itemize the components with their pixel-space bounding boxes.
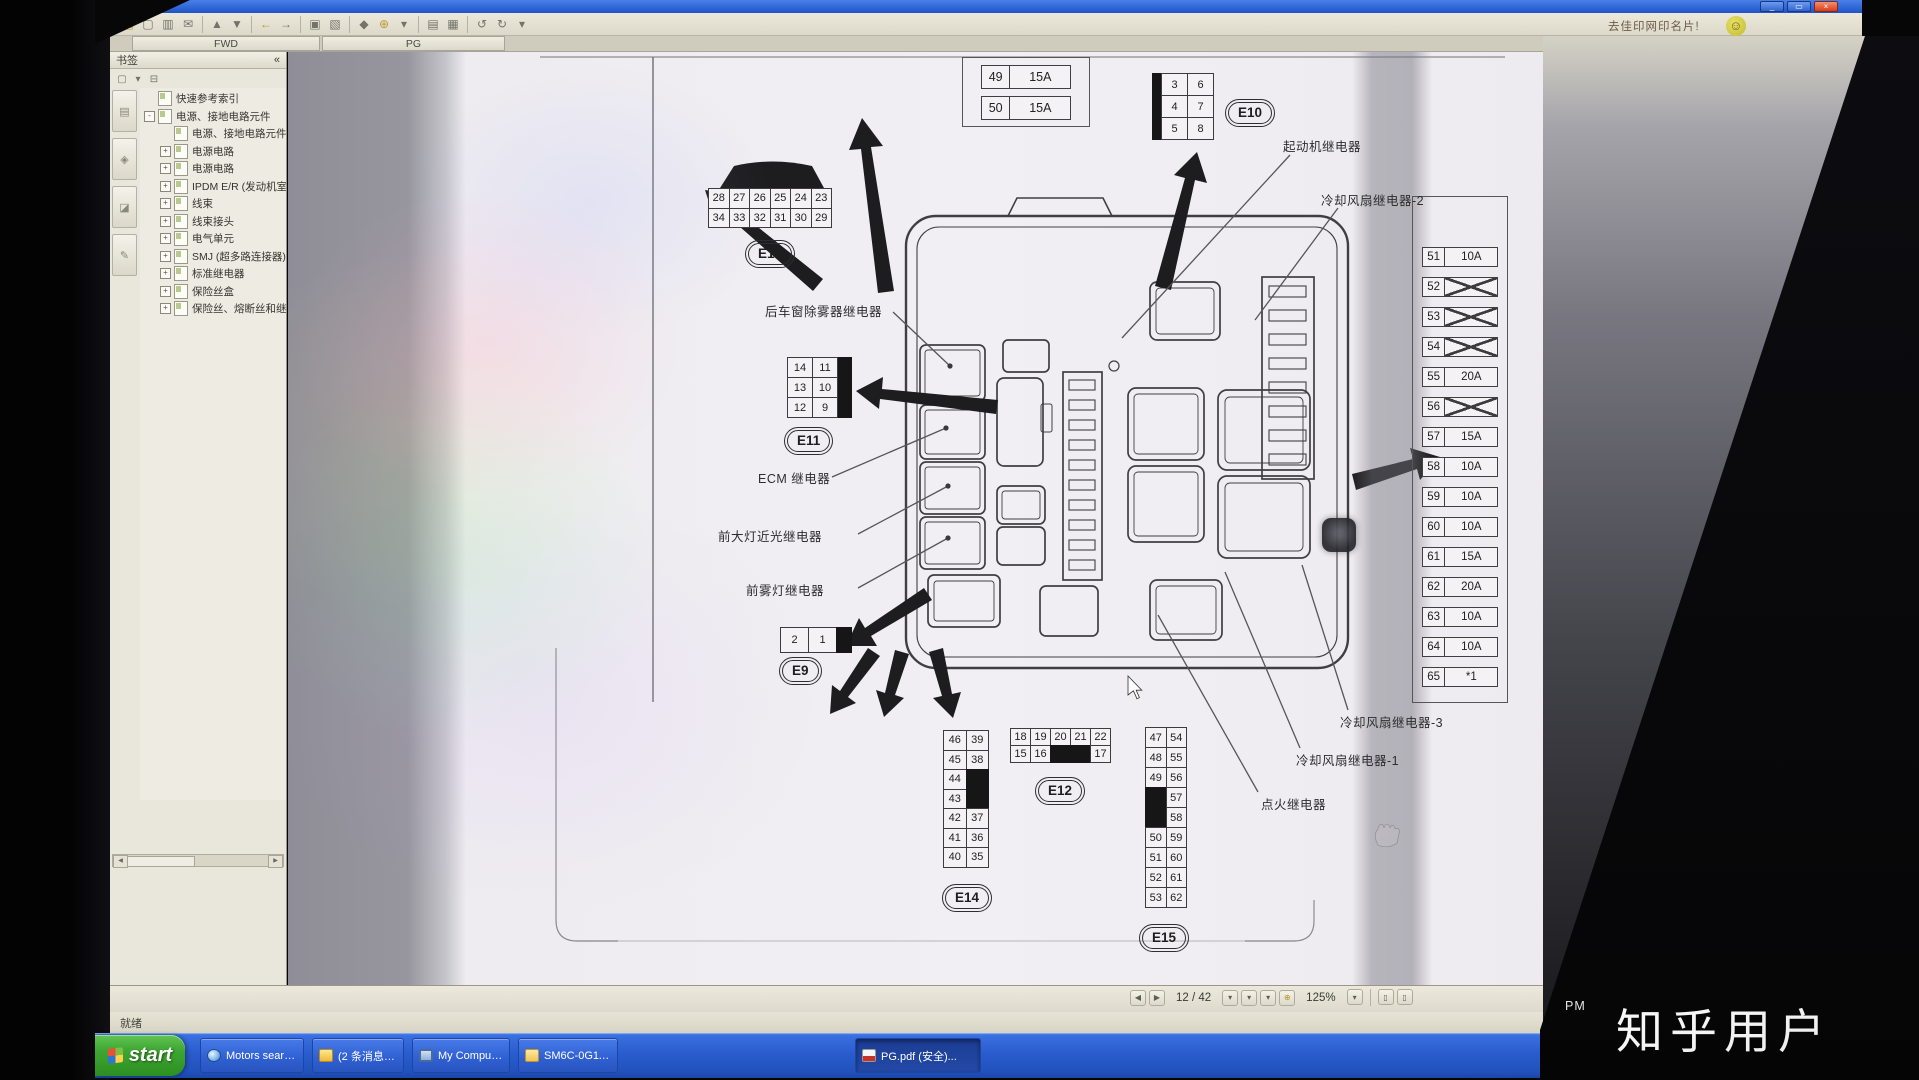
- fuse-number: 51: [1422, 247, 1446, 267]
- start-label: start: [129, 1044, 172, 1067]
- pages-panel-tab[interactable]: ▤: [112, 90, 137, 132]
- terminal-row: 4237: [943, 808, 989, 829]
- terminal-cell: 43: [943, 789, 967, 810]
- continuous-layout-icon[interactable]: ▦: [443, 15, 463, 34]
- terminal-cell: 49: [1145, 767, 1167, 788]
- terminal-row: 1411: [787, 357, 838, 378]
- bookmark-label[interactable]: 保险丝盒: [192, 284, 234, 299]
- blocked-cell: [836, 627, 852, 653]
- bookmark-label[interactable]: 电源、接地电路元件: [176, 109, 271, 124]
- terminal-row: 4035: [943, 847, 989, 868]
- fuse-number: 62: [1422, 577, 1446, 597]
- scroll-left-icon[interactable]: ◀: [113, 855, 128, 868]
- terminal-row: 1819202122: [1010, 728, 1111, 746]
- terminal-cell: 59: [1166, 827, 1188, 848]
- taskbar-task-pc[interactable]: My Computer: [412, 1038, 510, 1073]
- terminal-cell: 41: [943, 828, 967, 849]
- rotate-right-icon[interactable]: ↻: [492, 15, 512, 34]
- previous-page-icon[interactable]: ◀: [1130, 990, 1146, 1006]
- bookmark-label[interactable]: 电气单元: [192, 231, 234, 246]
- blocked-cell: [966, 769, 990, 790]
- bookmark-page-icon: [158, 91, 172, 106]
- bookmark-item[interactable]: +保险丝盒: [140, 283, 286, 301]
- fuse-rating: 20A: [1444, 367, 1498, 387]
- terminal-cell: 56: [1166, 767, 1188, 788]
- bookmark-page-icon: [174, 301, 188, 316]
- bookmarks-hscrollbar[interactable]: ◀ ▶: [112, 854, 284, 867]
- terminal-row: 43: [943, 789, 989, 810]
- terminal-cell: 34: [708, 208, 730, 229]
- bookmark-page-icon: [174, 196, 188, 211]
- collapse-box-icon[interactable]: -: [144, 111, 155, 122]
- fuse-number: 49: [981, 65, 1011, 89]
- terminal-cell: 46: [943, 730, 967, 751]
- fuse-row: 5520A: [1422, 367, 1499, 387]
- window-controls: _ ▭ ×: [1760, 1, 1838, 12]
- taskbar-task-globe[interactable]: Motors searc...: [200, 1038, 304, 1073]
- fuse-number: 58: [1422, 457, 1446, 477]
- rotate-left-icon[interactable]: ↺: [472, 15, 492, 34]
- fuse-number: 59: [1422, 487, 1446, 507]
- terminal-cell: 48: [1145, 747, 1167, 768]
- taskbar: start Motors searc...(2 条消息)日...My Compu…: [95, 1033, 1545, 1078]
- label-headlamp-low-relay: 前大灯近光继电器: [718, 526, 822, 545]
- terminal-cell: 55: [1166, 747, 1188, 768]
- zoom-tool-icon[interactable]: ⊕: [1279, 990, 1295, 1006]
- zoom-in-tool-icon[interactable]: ⊕: [374, 15, 394, 34]
- terminal-cell: 39: [966, 730, 990, 751]
- badge-e9: E9: [779, 657, 822, 685]
- expand-box-icon[interactable]: +: [160, 233, 171, 244]
- leader-lines: [832, 155, 1348, 792]
- bookmark-page-icon: [174, 126, 188, 141]
- bookmark-item[interactable]: +IPDM E/R (发动机室智能配电模块): [140, 178, 286, 196]
- close-button[interactable]: ×: [1814, 1, 1838, 12]
- fuse-row: 52: [1422, 277, 1499, 297]
- badge-e12: E12: [1035, 777, 1085, 805]
- expand-box-icon[interactable]: +: [160, 216, 171, 227]
- fuse-number: 60: [1422, 517, 1446, 537]
- fuse-rating: 10A: [1444, 637, 1498, 657]
- globe-icon: [207, 1049, 221, 1062]
- hand-tool-icon[interactable]: ◆: [354, 15, 374, 34]
- terminal-row: 36: [1161, 73, 1214, 96]
- fuse-table-top: 4915A5015A: [962, 57, 1090, 127]
- status-message-bar: 就绪: [110, 1012, 1545, 1033]
- connector-table-e12: 1819202122151617: [1010, 728, 1111, 763]
- expand-box-icon[interactable]: +: [160, 181, 171, 192]
- terminal-cell: 31: [770, 208, 792, 229]
- task-label: PG.pdf (安全)...: [881, 1048, 957, 1064]
- terminal-row: 47: [1161, 95, 1214, 118]
- bookmark-item[interactable]: 快速参考索引: [140, 90, 286, 108]
- pdf-toolbar: ▤▢▥✉▲▼←→▣▧◆⊕▾▤▦↺↻▾ 去佳印网印名片! ☺: [110, 13, 1862, 36]
- terminal-row: 5362: [1145, 887, 1187, 908]
- terminal-row: 4639: [943, 730, 989, 751]
- badge-e14: E14: [942, 884, 992, 912]
- terminal-cell: 25: [770, 188, 792, 209]
- terminal-cell: 8: [1187, 117, 1214, 140]
- terminal-row: 282726252423: [708, 188, 832, 209]
- terminal-cell: 20: [1050, 728, 1071, 746]
- bookmark-item[interactable]: +SMJ (超多路连接器): [140, 248, 286, 266]
- terminal-cell: 9: [812, 397, 838, 418]
- fuse-row: 6310A: [1422, 607, 1499, 627]
- terminal-cell: 3: [1161, 73, 1188, 96]
- fuse-row: 5715A: [1422, 427, 1499, 447]
- bookmark-page-icon: [174, 266, 188, 281]
- connector-table-e13: 282726252423343332313029: [708, 188, 832, 228]
- fuse-rating: 10A: [1444, 247, 1498, 267]
- fusebox-outline: [906, 198, 1348, 668]
- label-starter-relay: 起动机继电器: [1283, 136, 1361, 155]
- terminal-cell: 33: [729, 208, 751, 229]
- monitor-bezel-left: [0, 0, 110, 1080]
- terminal-cell: 5: [1161, 117, 1188, 140]
- badge-e13: E13: [745, 240, 795, 268]
- terminal-cell: 61: [1166, 867, 1188, 888]
- fuse-number: 50: [981, 96, 1011, 120]
- blocked-cell: [1070, 745, 1091, 763]
- expand-box-icon[interactable]: +: [160, 251, 171, 262]
- label-ignition-relay: 点火继电器: [1261, 794, 1326, 813]
- terminal-row: 4136: [943, 828, 989, 849]
- separator: [1370, 989, 1371, 1006]
- fuse-number: 63: [1422, 607, 1446, 627]
- fuse-rating: 10A: [1444, 517, 1498, 537]
- zoom-menu-icon[interactable]: ▾: [394, 15, 414, 34]
- blocked-cell: [1050, 745, 1071, 763]
- task-label: My Computer: [438, 1050, 503, 1062]
- terminal-cell: 16: [1030, 745, 1051, 763]
- fuse-rating: 15A: [1009, 96, 1071, 120]
- terminal-cell: 47: [1145, 727, 1167, 748]
- layout-buttons: ▾▯▯: [1347, 989, 1413, 1006]
- terminal-cell: 26: [749, 188, 771, 209]
- back-icon[interactable]: ←: [256, 15, 276, 34]
- label-cooling-fan-relay-2: 冷却风扇继电器-2: [1321, 190, 1424, 209]
- next-view-icon[interactable]: ▼: [227, 15, 247, 34]
- terminal-cell: 12: [787, 397, 813, 418]
- mouse-cursor: [1128, 676, 1142, 699]
- bookmark-page-icon: [174, 144, 188, 159]
- fuse-number: 53: [1422, 307, 1446, 327]
- expand-box-icon[interactable]: +: [160, 286, 171, 297]
- bookmarks-panel-tab[interactable]: ◈: [112, 138, 137, 180]
- terminal-cell: 53: [1145, 887, 1167, 908]
- terminal-row: 5059: [1145, 827, 1187, 848]
- fuse-rating: 15A: [1444, 547, 1498, 567]
- display-menu-icon[interactable]: ▾: [1260, 990, 1276, 1006]
- bookmark-item[interactable]: +线束接头: [140, 213, 286, 231]
- fuse-number: 56: [1422, 397, 1446, 417]
- fuse-number: 61: [1422, 547, 1446, 567]
- fuse-number: 57: [1422, 427, 1446, 447]
- terminal-cell: 29: [811, 208, 833, 229]
- fuse-rating: 20A: [1444, 577, 1498, 597]
- fuse-number: 52: [1422, 277, 1446, 297]
- fuse-empty-cell: [1444, 397, 1498, 417]
- e13-connector-wedge: [720, 162, 824, 189]
- task-label: Motors searc...: [226, 1050, 297, 1062]
- taskbar-task-folder[interactable]: SM6C-0G11P0: [518, 1038, 618, 1073]
- collapse-all-icon[interactable]: ⊟: [146, 72, 162, 87]
- bookmark-label[interactable]: 线束: [192, 196, 213, 211]
- expand-box-icon[interactable]: +: [160, 163, 171, 174]
- connector-table-e11: 14111310129: [787, 357, 852, 418]
- snapshot-tool-icon[interactable]: ▧: [325, 15, 345, 34]
- connector-table-e9: 21: [780, 627, 852, 653]
- fuse-row: 6115A: [1422, 547, 1499, 567]
- bookmarks-header: 书签 «: [110, 52, 286, 69]
- terminal-row: 58: [1145, 807, 1187, 828]
- relay-modules: [920, 282, 1310, 640]
- terminal-cell: 22: [1090, 728, 1111, 746]
- terminal-row: 4956: [1145, 767, 1187, 788]
- terminal-cell: 50: [1145, 827, 1167, 848]
- terminal-row: 4855: [1145, 747, 1187, 768]
- terminal-cell: 21: [1070, 728, 1091, 746]
- bookmark-label[interactable]: SMJ (超多路连接器): [192, 249, 286, 264]
- terminal-cell: 52: [1145, 867, 1167, 888]
- terminal-row: 343332313029: [708, 208, 832, 229]
- previous-view-icon[interactable]: ▲: [207, 15, 227, 34]
- label-cooling-fan-relay-1: 冷却风扇继电器-1: [1296, 750, 1399, 769]
- statusbar: ◀▶ 12 / 42 ▾▾▾⊕ 125% ▾▯▯: [110, 985, 1545, 1012]
- restore-button[interactable]: ▭: [1787, 1, 1811, 12]
- bookmark-label[interactable]: 保险丝、熔断丝和继电器: [192, 301, 286, 316]
- photo-stage: _ ▭ × ▤▢▥✉▲▼←→▣▧◆⊕▾▤▦↺↻▾ 去佳印网印名片! ☺ FWD …: [0, 0, 1919, 1080]
- fuse-number: 64: [1422, 637, 1446, 657]
- task-label: SM6C-0G11P0: [544, 1050, 611, 1062]
- terminal-cell: 13: [787, 377, 813, 398]
- screen-artifact: [1322, 518, 1356, 552]
- tab-pg[interactable]: PG: [322, 36, 505, 51]
- separator: [251, 16, 252, 33]
- email-icon[interactable]: ✉: [178, 15, 198, 34]
- terminal-cell: 40: [943, 847, 967, 868]
- terminal-cell: 54: [1166, 727, 1188, 748]
- bookmark-item[interactable]: +保险丝、熔断丝和继电器: [140, 300, 286, 318]
- fuse-row: 5015A: [981, 96, 1072, 120]
- bookmark-item[interactable]: +线束: [140, 195, 286, 213]
- taskbar-task-msg[interactable]: (2 条消息)日...: [312, 1038, 404, 1073]
- expand-box-icon[interactable]: +: [160, 268, 171, 279]
- bookmark-page-icon: [174, 161, 188, 176]
- terminal-cell: 42: [943, 808, 967, 829]
- fuse-rating: *1: [1444, 667, 1498, 687]
- terminal-cell: 19: [1030, 728, 1051, 746]
- fuse-empty-cell: [1444, 277, 1498, 297]
- fuse-strips: [1063, 277, 1314, 580]
- terminal-row: 5261: [1145, 867, 1187, 888]
- select-tool-icon[interactable]: ▣: [305, 15, 325, 34]
- terminal-cell: 44: [943, 769, 967, 790]
- forward-icon[interactable]: →: [276, 15, 296, 34]
- hand-cursor-artifact: [1375, 824, 1399, 846]
- page-indicator[interactable]: 12 / 42: [1176, 992, 1211, 1004]
- terminal-row: 57: [1145, 787, 1187, 808]
- terminal-cell: 57: [1166, 787, 1188, 808]
- terminal-cell: 7: [1187, 95, 1214, 118]
- separator: [467, 16, 468, 33]
- ad-note: 去佳印网印名片! ☺: [1608, 16, 1746, 36]
- terminal-row: 1310: [787, 377, 838, 398]
- window-titlebar: _ ▭ ×: [110, 0, 1862, 13]
- fuse-row: 53: [1422, 307, 1499, 327]
- folder-icon: [525, 1049, 539, 1062]
- fuse-row: 6220A: [1422, 577, 1499, 597]
- fuse-rating: 10A: [1444, 487, 1498, 507]
- zoom-level[interactable]: 125%: [1306, 992, 1335, 1004]
- windows-flag-icon: [108, 1047, 123, 1064]
- terminal-cell: 17: [1090, 745, 1111, 763]
- bookmark-label[interactable]: 线束接头: [192, 214, 234, 229]
- view-buttons: ▾▾▾⊕: [1222, 990, 1295, 1006]
- expand-box-icon[interactable]: +: [160, 198, 171, 209]
- next-page-icon[interactable]: ▶: [1149, 990, 1165, 1006]
- fuse-rating: 10A: [1444, 607, 1498, 627]
- bookmark-item[interactable]: +电源电路: [140, 160, 286, 178]
- expand-box-icon[interactable]: +: [160, 146, 171, 157]
- terminal-cell: 38: [966, 750, 990, 771]
- terminal-cell: 1: [808, 627, 837, 653]
- panel-collapse-icon[interactable]: «: [274, 54, 280, 66]
- blocked-cell: [966, 789, 990, 810]
- fuse-rating: 10A: [1444, 457, 1498, 477]
- single-page-view-icon[interactable]: ▯: [1378, 989, 1394, 1005]
- label-rear-defogger-relay: 后车窗除雾器继电器: [765, 301, 882, 320]
- scroll-thumb[interactable]: [127, 856, 195, 867]
- bookmarks-title: 书签: [116, 52, 138, 68]
- fuse-empty-cell: [1444, 307, 1498, 327]
- status-text: 就绪: [120, 1015, 142, 1031]
- bookmark-page-icon: [174, 179, 188, 194]
- bookmark-label[interactable]: 标准继电器: [192, 266, 245, 281]
- fuse-row: 54: [1422, 337, 1499, 357]
- options-menu-icon[interactable]: ▾: [130, 72, 146, 87]
- fuse-row: 5810A: [1422, 457, 1499, 477]
- fuse-row: 6010A: [1422, 517, 1499, 537]
- bookmark-item[interactable]: +电气单元: [140, 230, 286, 248]
- fuse-number: 54: [1422, 337, 1446, 357]
- bookmark-label[interactable]: 快速参考索引: [176, 91, 239, 106]
- terminal-cell: 51: [1145, 847, 1167, 868]
- label-front-fog-relay: 前雾灯继电器: [746, 580, 824, 599]
- taskbar-task-pdf[interactable]: PG.pdf (安全)...: [855, 1038, 981, 1073]
- terminal-cell: 4: [1161, 95, 1188, 118]
- task-label: (2 条消息)日...: [338, 1048, 397, 1064]
- bookmark-options-icon[interactable]: ▢: [114, 72, 130, 87]
- layers-panel-tab[interactable]: ◪: [112, 186, 137, 228]
- smiley-icon: ☺: [1726, 16, 1746, 36]
- expand-box-icon[interactable]: +: [160, 303, 171, 314]
- separator: [202, 16, 203, 33]
- start-button[interactable]: start: [95, 1035, 185, 1076]
- terminal-cell: 18: [1010, 728, 1031, 746]
- terminal-cell: 60: [1166, 847, 1188, 868]
- terminal-cell: 30: [790, 208, 812, 229]
- bookmark-tree: 快速参考索引-电源、接地电路元件电源、接地电路元件+电源电路+电源电路+IPDM…: [140, 88, 286, 800]
- bookmark-page-icon: [158, 109, 172, 124]
- terminal-cell: 37: [966, 808, 990, 829]
- bookmark-label[interactable]: 电源、接地电路元件: [192, 126, 286, 141]
- single-page-layout-icon[interactable]: ▤: [423, 15, 443, 34]
- zoom-level-menu-icon[interactable]: ▾: [1347, 989, 1363, 1005]
- fuse-rating: 15A: [1444, 427, 1498, 447]
- scroll-right-icon[interactable]: ▶: [268, 855, 283, 868]
- tab-fwd[interactable]: FWD: [132, 36, 320, 51]
- scroll-mode-menu-icon[interactable]: ▾: [1241, 990, 1257, 1006]
- osd-text: PM: [1565, 999, 1586, 1013]
- separator: [418, 16, 419, 33]
- ad-note-text: 去佳印网印名片!: [1608, 18, 1700, 34]
- page-controls: ◀▶ 12 / 42 ▾▾▾⊕ 125% ▾▯▯: [1130, 989, 1413, 1006]
- bookmark-item[interactable]: -电源、接地电路元件: [140, 108, 286, 126]
- terminal-cell: 32: [749, 208, 771, 229]
- terminal-cell: 11: [812, 357, 838, 378]
- label-ecm-relay: ECM 继电器: [758, 468, 830, 487]
- separator: [300, 16, 301, 33]
- terminal-cell: 27: [729, 188, 751, 209]
- bookmark-page-icon: [174, 249, 188, 264]
- pdf-icon: [862, 1049, 876, 1062]
- navigation-tab-strip: ▤◈◪✎: [112, 90, 138, 276]
- terminal-cell: 6: [1187, 73, 1214, 96]
- bookmark-page-icon: [174, 231, 188, 246]
- continuous-page-view-icon[interactable]: ▯: [1397, 989, 1413, 1005]
- fuse-table-right: 5110A5253545520A565715A5810A5910A6010A61…: [1412, 196, 1508, 703]
- msg-icon: [319, 1049, 333, 1062]
- connector-table-e15: 47544855495657585059516052615362: [1145, 727, 1187, 908]
- terminal-row: 21: [780, 627, 852, 653]
- blocked-cell: [1145, 807, 1167, 828]
- terminal-cell: 35: [966, 847, 990, 868]
- minimize-button[interactable]: _: [1760, 1, 1784, 12]
- print-icon[interactable]: ▥: [158, 15, 178, 34]
- terminal-row: 5160: [1145, 847, 1187, 868]
- fuse-row: 5110A: [1422, 247, 1499, 267]
- terminal-cell: 24: [790, 188, 812, 209]
- rotate-menu-icon[interactable]: ▾: [512, 15, 532, 34]
- bookmark-page-icon: [174, 214, 188, 229]
- badge-e15: E15: [1139, 924, 1189, 952]
- fuse-number: 65: [1422, 667, 1446, 687]
- connector-table-e10: 364758: [1152, 73, 1214, 140]
- watermark: 知乎用户: [1616, 993, 1832, 1062]
- blocked-cell: [1145, 787, 1167, 808]
- terminal-row: 4538: [943, 750, 989, 771]
- document-tab-bar: FWD PG: [110, 36, 1545, 52]
- separator: [349, 16, 350, 33]
- terminal-cell: 36: [966, 828, 990, 849]
- terminal-cell: 23: [811, 188, 833, 209]
- terminal-row: 58: [1161, 117, 1214, 140]
- bookmark-label[interactable]: 电源电路: [192, 161, 234, 176]
- bookmark-item[interactable]: +电源电路: [140, 143, 286, 161]
- terminal-cell: 62: [1166, 887, 1188, 908]
- label-cooling-fan-relay-3: 冷却风扇继电器-3: [1340, 712, 1443, 731]
- comments-panel-tab[interactable]: ✎: [112, 234, 137, 276]
- fuse-row: 65*1: [1422, 667, 1499, 687]
- bookmark-label[interactable]: 电源电路: [192, 144, 234, 159]
- bookmark-label[interactable]: IPDM E/R (发动机室智能配电模块): [192, 179, 286, 194]
- page-view-menu-icon[interactable]: ▾: [1222, 990, 1238, 1006]
- bookmark-item[interactable]: 电源、接地电路元件: [140, 125, 286, 143]
- fuse-row: 5910A: [1422, 487, 1499, 507]
- bookmark-item[interactable]: +标准继电器: [140, 265, 286, 283]
- badge-e10: E10: [1225, 99, 1275, 127]
